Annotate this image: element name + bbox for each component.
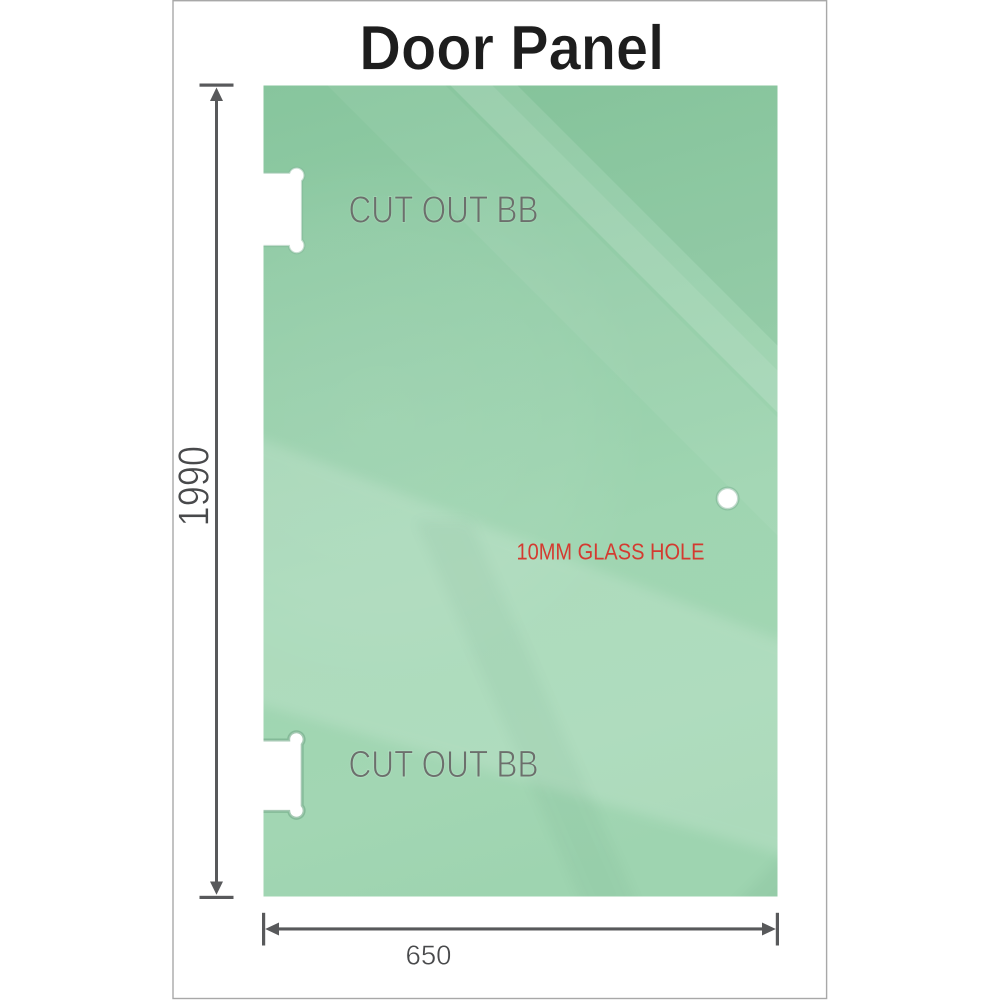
- svg-text:CUT OUT BB: CUT OUT BB: [349, 744, 539, 786]
- svg-text:1990: 1990: [170, 446, 219, 527]
- svg-text:650: 650: [406, 940, 452, 971]
- svg-text:CUT OUT BB: CUT OUT BB: [349, 190, 539, 232]
- svg-text:10MM GLASS HOLE: 10MM GLASS HOLE: [517, 539, 705, 565]
- svg-text:Door Panel: Door Panel: [359, 14, 664, 84]
